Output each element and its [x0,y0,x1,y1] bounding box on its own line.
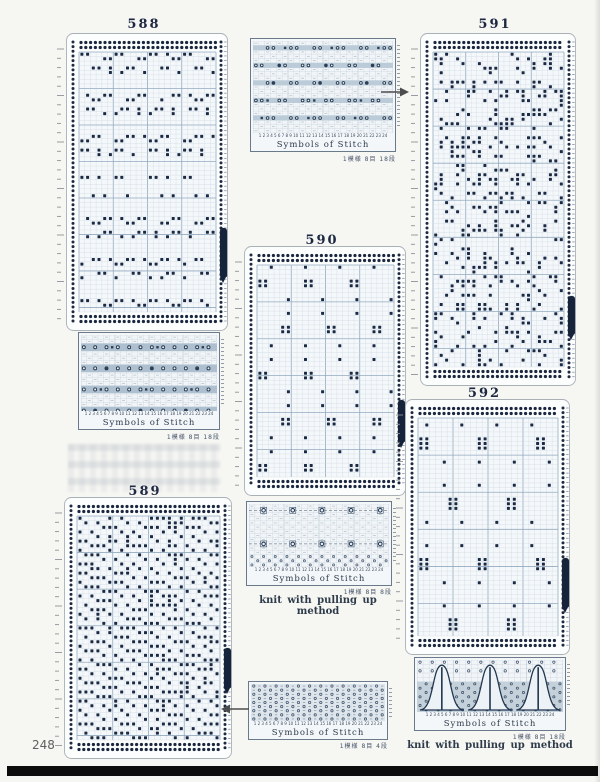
punch-card-592 [395,399,574,655]
pattern-spec-caption: 1模様 8目 4段 [248,741,388,750]
row-number-scale [567,664,570,708]
card-clip-marker [224,648,231,688]
stitch-grid [251,684,385,721]
punch-card-591 [410,33,580,386]
punch-card-588 [56,33,232,331]
stitch-grid [253,41,393,133]
left-arrow-icon [220,701,250,715]
right-arrow-icon [380,84,410,98]
card-clip-marker [220,228,227,277]
symbols-of-stitch-label: Symbols of Stitch [251,139,395,151]
page-number: 248 [32,738,55,752]
scanned-page: 588 589 590 591 592 1 2 3 4 5 6 7 8 9 10… [0,0,600,782]
card-title-591: 591 [410,17,580,32]
card-title-588: 588 [56,17,232,32]
row-number-scale [389,688,392,717]
punch-card-589 [54,497,236,759]
stitch-symbols-chart-588: 1 2 3 4 5 6 7 8 9 10 11 12 13 14 15 16 1… [78,332,220,430]
bleed-through-text [68,444,220,492]
symbols-of-stitch-label: Symbols of Stitch [79,417,219,429]
stitch-grid [249,504,389,567]
row-number-scale [393,508,396,563]
stitch-symbols-chart-pullup: 1 2 3 4 5 6 7 8 9 10 11 12 13 14 15 16 1… [414,657,566,731]
symbols-of-stitch-label: Symbols of Stitch [249,727,387,739]
page-edge-bar [7,766,598,776]
scan-edge-shadow [594,0,600,782]
symbols-of-stitch-label: Symbols of Stitch [415,718,565,730]
stitch-grid [417,660,563,712]
pattern-spec-caption: 1模様 8目 18段 [78,432,220,441]
symbols-of-stitch-label: Symbols of Stitch [247,573,391,585]
pattern-spec-caption: 1模様 8目 18段 [250,154,396,163]
punch-card-590 [234,246,410,496]
stitch-symbols-chart-bottom: 1 2 3 4 5 6 7 8 9 10 11 12 13 14 15 16 1… [248,681,388,740]
row-number-scale [221,339,224,407]
stitch-symbols-chart-590: 1 2 3 4 5 6 7 8 9 10 11 12 13 14 15 16 1… [246,501,392,586]
stitch-grid [81,335,217,411]
stitch-symbols-chart-top: 1 2 3 4 5 6 7 8 9 10 11 12 13 14 15 16 1… [250,38,396,152]
card-clip-marker [568,296,575,334]
card-clip-marker [562,558,569,607]
knit-method-caption: knit with pulling up method [404,740,576,751]
knit-method-caption: knit with pulling up method [238,595,398,617]
